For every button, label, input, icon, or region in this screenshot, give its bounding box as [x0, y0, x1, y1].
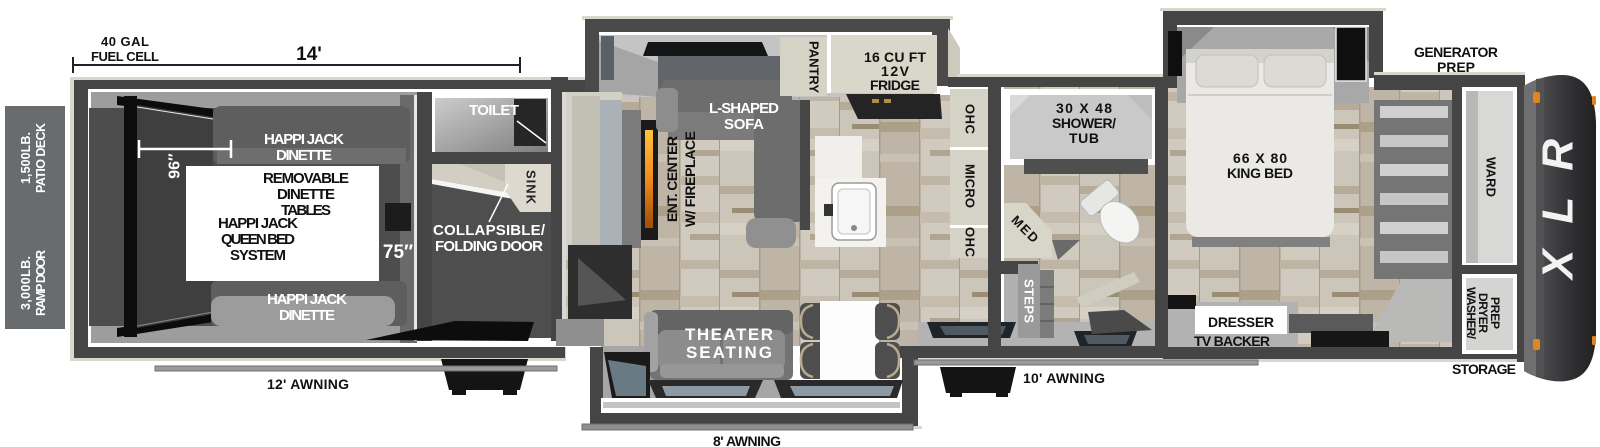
svg-text:SOFA: SOFA	[724, 116, 764, 133]
svg-text:STORAGE: STORAGE	[1452, 361, 1516, 377]
svg-text:ENT. CENTER: ENT. CENTER	[664, 136, 680, 222]
svg-text:30 X 48: 30 X 48	[1056, 100, 1112, 116]
svg-text:HAPPI JACK: HAPPI JACK	[267, 291, 347, 308]
svg-text:W/ FIREPLACE: W/ FIREPLACE	[682, 131, 698, 227]
svg-text:MICRO: MICRO	[963, 164, 978, 208]
svg-text:HAPPI JACK: HAPPI JACK	[218, 215, 298, 232]
svg-text:WASHER/: WASHER/	[1464, 287, 1478, 340]
svg-text:L-SHAPED: L-SHAPED	[709, 100, 779, 117]
svg-text:75″: 75″	[383, 242, 413, 263]
svg-text:PATIO DECK: PATIO DECK	[34, 123, 48, 193]
svg-text:SHOWER/: SHOWER/	[1052, 115, 1116, 131]
svg-text:3,000LB.: 3,000LB.	[19, 256, 33, 310]
svg-text:PANTRY: PANTRY	[807, 41, 822, 93]
svg-text:66 X 80: 66 X 80	[1233, 150, 1287, 166]
svg-text:DRESSER: DRESSER	[1208, 314, 1274, 330]
svg-text:WARD: WARD	[1484, 157, 1499, 197]
svg-text:XLR: XLR	[1534, 131, 1583, 282]
svg-text:FUEL CELL: FUEL CELL	[91, 49, 159, 64]
svg-text:TV BACKER: TV BACKER	[1194, 333, 1270, 349]
svg-text:SEATING: SEATING	[686, 343, 772, 362]
svg-text:GENERATOR: GENERATOR	[1414, 44, 1498, 60]
svg-text:10' AWNING: 10' AWNING	[1023, 370, 1105, 386]
svg-text:PREP: PREP	[1488, 297, 1502, 329]
svg-text:DINETTE: DINETTE	[276, 147, 332, 164]
svg-text:12' AWNING: 12' AWNING	[267, 376, 349, 392]
svg-text:HAPPI JACK: HAPPI JACK	[264, 131, 344, 148]
svg-text:FRIDGE: FRIDGE	[870, 77, 920, 93]
svg-text:40 GAL: 40 GAL	[101, 34, 149, 49]
svg-text:FOLDING DOOR: FOLDING DOOR	[435, 238, 543, 255]
svg-text:8' AWNING: 8' AWNING	[713, 433, 781, 447]
svg-text:OHC: OHC	[963, 104, 978, 135]
svg-text:DRYER: DRYER	[1476, 293, 1490, 333]
svg-text:STEPS: STEPS	[1022, 279, 1037, 323]
svg-text:1,500LB.: 1,500LB.	[19, 132, 33, 184]
svg-text:SINK: SINK	[524, 170, 539, 205]
svg-text:RAMP DOOR: RAMP DOOR	[34, 250, 48, 316]
svg-text:SYSTEM: SYSTEM	[230, 247, 286, 264]
svg-text:QUEEN BED: QUEEN BED	[221, 231, 295, 248]
svg-text:DINETTE: DINETTE	[277, 186, 335, 203]
svg-text:OHC: OHC	[963, 227, 978, 258]
svg-text:REMOVABLE: REMOVABLE	[263, 170, 349, 187]
svg-text:COLLAPSIBLE/: COLLAPSIBLE/	[433, 222, 546, 239]
svg-text:14': 14'	[296, 44, 322, 65]
svg-text:DINETTE: DINETTE	[279, 307, 335, 324]
svg-text:THEATER: THEATER	[685, 325, 773, 344]
svg-text:TUB: TUB	[1069, 130, 1099, 146]
svg-text:96″: 96″	[167, 153, 184, 179]
svg-text:KING BED: KING BED	[1227, 165, 1293, 181]
svg-text:PREP: PREP	[1437, 59, 1475, 75]
svg-text:TOILET: TOILET	[469, 102, 519, 119]
